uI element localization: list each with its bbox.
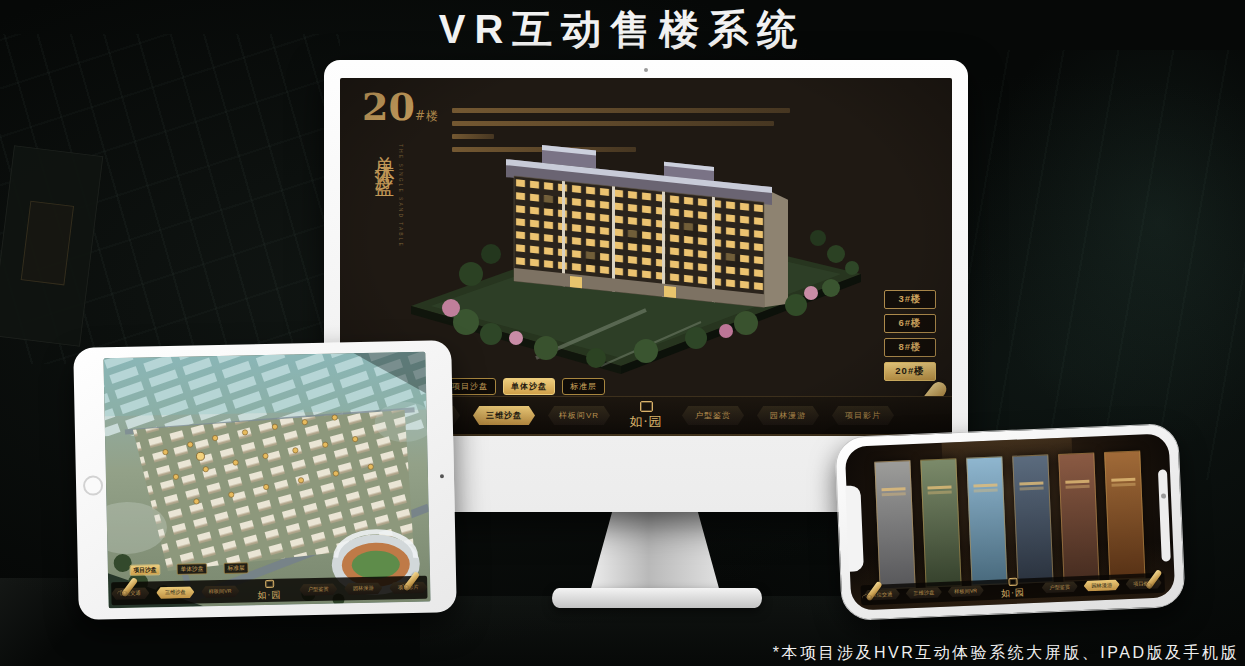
nav-item-project-video[interactable]: 项目影片 [832, 406, 894, 425]
webcam-dot-icon [644, 68, 648, 72]
scene-panel-building-day[interactable] [966, 456, 1007, 585]
scroll-icon[interactable] [117, 576, 140, 599]
scroll-bar-icon [1145, 569, 1162, 589]
page-title: VR互动售楼系统 [0, 2, 1245, 57]
sandbox-subtabs: 项目沙盘 单体沙盘 标准层 [444, 378, 605, 395]
subtab-project-sandbox[interactable]: 项目沙盘 [130, 564, 160, 575]
camera-dot-icon [440, 474, 444, 478]
nav-item-model-room-vr[interactable]: 样板间VR [548, 406, 610, 425]
nav-item-label: 户型鉴赏 [1049, 583, 1070, 591]
tablet-screen: 项目沙盘 单体沙盘 标准层 区位交通 三维沙盘 样板间VR 如·园 户型鉴赏 园… [103, 352, 430, 609]
logo-seal-icon [265, 579, 274, 587]
scene-panel-label [1065, 480, 1089, 484]
subtab-standard-floor[interactable]: 标准层 [224, 562, 249, 573]
nav-item-label: 户型鉴赏 [308, 585, 329, 593]
heading-subtitle-vertical: 单体沙盘 [372, 140, 399, 290]
nav-item-label: 项目影片 [845, 410, 881, 421]
floor-selector: 3#楼 6#楼 8#楼 20#楼 [884, 290, 936, 381]
nav-item-3d-sandbox[interactable]: 三维沙盘 [906, 586, 942, 598]
nav-item-garden-tour[interactable]: 园林漫游 [344, 582, 382, 595]
scene-panel-garden[interactable] [920, 458, 961, 587]
nav-item-label: 样板间VR [954, 587, 977, 595]
building-heading: 20#楼 [362, 88, 439, 126]
nav-item-3d-sandbox[interactable]: 三维沙盘 [473, 406, 535, 425]
background-map-texture [0, 34, 340, 364]
scroll-bar-icon [866, 581, 883, 601]
monitor-stand-neck [590, 512, 720, 592]
home-button[interactable] [83, 475, 103, 495]
scene-panel-autumn[interactable] [1058, 452, 1099, 581]
subtab-standard-floor[interactable]: 标准层 [562, 378, 605, 395]
logo-text: 如·园 [1001, 586, 1025, 600]
nav-item-floorplan[interactable]: 户型鉴赏 [299, 583, 337, 596]
subtab-single-sandbox[interactable]: 单体沙盘 [177, 563, 207, 574]
background-framed-sign [0, 145, 103, 347]
scene-panel-label [882, 487, 906, 491]
description-text-line [452, 108, 790, 113]
scroll-icon[interactable] [1141, 568, 1164, 591]
scene-gallery [874, 450, 1145, 589]
nav-item-model-room-vr[interactable]: 样板间VR [201, 585, 239, 598]
nav-item-label: 园林漫游 [770, 410, 806, 421]
background-aerial-texture [955, 50, 1245, 480]
scroll-icon[interactable] [861, 580, 884, 603]
logo-seal-icon [640, 401, 653, 412]
nav-item-garden-tour[interactable]: 园林漫游 [1084, 579, 1120, 591]
brand-logo: 如·园 [246, 579, 292, 602]
nav-item-label: 园林漫游 [353, 584, 374, 592]
nav-item-label: 园林漫游 [1091, 581, 1112, 589]
nav-item-label: 样板间VR [559, 410, 599, 421]
monitor-stand-base [552, 588, 762, 608]
description-text-line [452, 121, 774, 126]
scroll-bar-icon [121, 577, 138, 597]
scroll-icon[interactable] [399, 571, 422, 594]
nav-item-garden-tour[interactable]: 园林漫游 [757, 406, 819, 425]
nav-item-model-room-vr[interactable]: 样板间VR [948, 585, 984, 597]
background-corner-texture [0, 578, 90, 666]
scene-panel-sketch[interactable] [874, 460, 915, 589]
phone-device: 区位交通 三维沙盘 样板间VR 如·园 户型鉴赏 园林漫游 项目影片 [834, 423, 1185, 621]
single-building-render[interactable] [396, 134, 886, 386]
background-plaque [21, 201, 74, 286]
building-number-suffix: #楼 [415, 109, 439, 123]
nav-item-3d-sandbox[interactable]: 三维沙盘 [156, 586, 194, 599]
nav-item-floorplan[interactable]: 户型鉴赏 [682, 406, 744, 425]
subtab-single-sandbox[interactable]: 单体沙盘 [503, 378, 555, 395]
floor-button-8[interactable]: 8#楼 [884, 338, 936, 357]
logo-text: 如·园 [629, 413, 662, 431]
building-number: 20 [362, 84, 415, 129]
nav-item-label: 三维沙盘 [913, 588, 934, 596]
logo-text: 如·园 [257, 588, 281, 601]
brand-logo: 如·园 [623, 401, 669, 431]
nav-item-label: 户型鉴赏 [695, 410, 731, 421]
scroll-bar-icon [403, 571, 420, 591]
scene-panel-label [973, 483, 997, 487]
floor-button-3[interactable]: 3#楼 [884, 290, 936, 309]
footnote-text: *本项目涉及HVR互动体验系统大屏版、IPAD版及手机版 [773, 643, 1239, 664]
scene-panel-interior[interactable] [1104, 450, 1145, 579]
phone-screen: 区位交通 三维沙盘 样板间VR 如·园 户型鉴赏 园林漫游 项目影片 [845, 433, 1176, 610]
floor-button-6[interactable]: 6#楼 [884, 314, 936, 333]
tablet-sandbox-subtabs: 项目沙盘 单体沙盘 标准层 [130, 560, 258, 578]
nav-item-label: 三维沙盘 [165, 588, 186, 596]
nav-item-label: 样板间VR [209, 587, 232, 595]
scene-panel-building-dusk[interactable] [1012, 454, 1053, 583]
nav-item-label: 三维沙盘 [486, 410, 522, 421]
nav-item-floorplan[interactable]: 户型鉴赏 [1042, 581, 1078, 593]
scene-panel-label [928, 485, 952, 489]
scene-panel-label [1111, 478, 1135, 482]
brand-logo: 如·园 [989, 577, 1036, 601]
logo-seal-icon [1008, 578, 1017, 586]
tablet-device: 项目沙盘 单体沙盘 标准层 区位交通 三维沙盘 样板间VR 如·园 户型鉴赏 园… [73, 340, 457, 620]
promo-canvas: VR互动售楼系统 20#楼 单体沙盘 THE SINGLE SAND TABLE [0, 0, 1245, 666]
scene-panel-label [1019, 482, 1043, 486]
